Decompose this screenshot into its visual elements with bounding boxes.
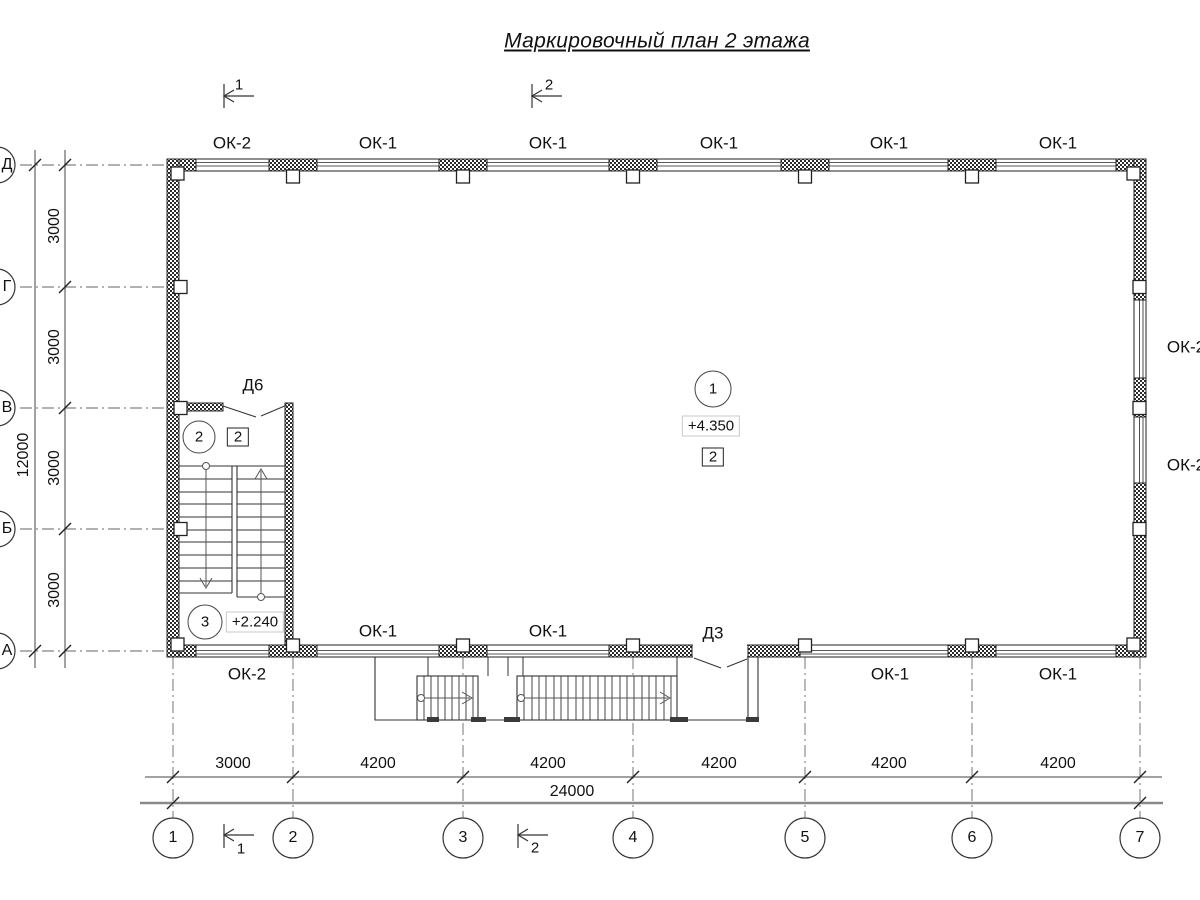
room-1-elevation: +4.350 xyxy=(682,416,740,437)
dim-col-2: 4200 xyxy=(360,756,396,772)
section-mark-2-bottom: 2 xyxy=(531,841,539,856)
dim-row-1: 3000 xyxy=(47,208,63,244)
axis-col-4: 4 xyxy=(629,830,638,846)
window-label-top-5: ОК-1 xyxy=(870,135,908,152)
axis-col-1: 1 xyxy=(169,830,178,846)
section-mark-2-top: 2 xyxy=(545,78,553,93)
column-markers xyxy=(171,167,1146,652)
door-label-d6: Д6 xyxy=(243,377,264,394)
dim-col-6: 4200 xyxy=(1040,756,1076,772)
axis-col-2: 2 xyxy=(289,830,298,846)
dim-col-total: 24000 xyxy=(550,784,595,800)
window-label-top-2: ОК-1 xyxy=(359,135,397,152)
drawing-title: Маркировочный план 2 этажа xyxy=(504,31,810,52)
dim-col-3: 4200 xyxy=(530,756,566,772)
section-mark-1-bottom: 1 xyxy=(237,842,245,857)
floor-plan-canvas: Маркировочный план 2 этажа 1 2 1 2 ОК-2 … xyxy=(0,0,1200,900)
axis-row-a: А xyxy=(2,643,13,659)
section-mark-1-top: 1 xyxy=(235,78,243,93)
axis-col-3: 3 xyxy=(459,830,468,846)
window-label-inside-2: ОК-1 xyxy=(529,623,567,640)
window-label-inside-1: ОК-1 xyxy=(359,623,397,640)
axis-row-g: Г xyxy=(3,279,12,295)
dim-row-3: 3000 xyxy=(47,450,63,486)
axis-col-7: 7 xyxy=(1136,830,1145,846)
door-swings xyxy=(223,405,747,668)
dim-row-4: 3000 xyxy=(47,572,63,608)
window-label-top-1: ОК-2 xyxy=(213,135,251,152)
window-label-top-3: ОК-1 xyxy=(529,135,567,152)
axis-row-d: Д xyxy=(2,157,13,173)
window-label-bottom-3: ОК-1 xyxy=(1039,666,1077,683)
room-3-number: 3 xyxy=(201,615,209,630)
door-d3-opening xyxy=(693,644,747,658)
axis-row-b: Б xyxy=(2,521,13,537)
stairwell xyxy=(179,463,285,601)
window-label-bottom-2: ОК-1 xyxy=(871,666,909,683)
room-3-elevation: +2.240 xyxy=(226,612,284,633)
room-circles xyxy=(183,371,731,639)
dim-row-total: 12000 xyxy=(16,433,32,478)
axis-row-v: В xyxy=(2,400,13,416)
dim-col-5: 4200 xyxy=(871,756,907,772)
dim-row-2: 3000 xyxy=(47,329,63,365)
room-2-finish-badge: 2 xyxy=(227,428,249,447)
stairwell-wall-vertical xyxy=(285,403,293,645)
stair-direction xyxy=(200,463,267,601)
walls xyxy=(167,159,1146,658)
room-1-number: 1 xyxy=(709,382,717,397)
window-label-top-4: ОК-1 xyxy=(700,135,738,152)
porch-stairs xyxy=(375,657,759,722)
room-1-finish-badge: 2 xyxy=(702,448,724,467)
plan-drawing xyxy=(0,0,1200,900)
window-label-right-2: ОК-2 xyxy=(1167,457,1200,474)
window-label-bottom-1: ОК-2 xyxy=(228,666,266,683)
window-label-right-1: ОК-2 xyxy=(1167,339,1200,356)
door-label-d3: Д3 xyxy=(703,625,724,642)
dim-col-1: 3000 xyxy=(215,756,251,772)
axis-col-6: 6 xyxy=(968,830,977,846)
room-2-number: 2 xyxy=(195,430,203,445)
window-label-top-6: ОК-1 xyxy=(1039,135,1077,152)
dim-col-4: 4200 xyxy=(701,756,737,772)
axis-col-5: 5 xyxy=(801,830,810,846)
